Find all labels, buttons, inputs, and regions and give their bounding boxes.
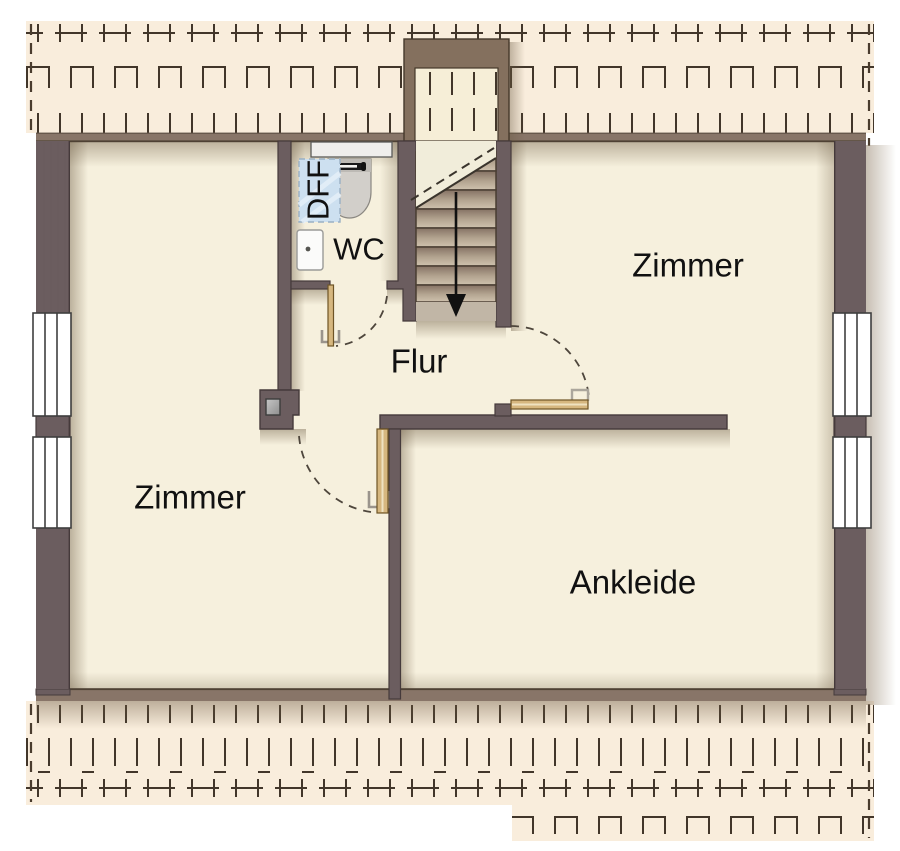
svg-text:Ankleide: Ankleide — [570, 564, 697, 601]
svg-text:Zimmer: Zimmer — [632, 247, 744, 284]
svg-text:Zimmer: Zimmer — [134, 479, 246, 516]
svg-text:WC: WC — [333, 232, 385, 267]
svg-text:Flur: Flur — [391, 343, 448, 380]
svg-text:DFF: DFF — [301, 160, 336, 220]
